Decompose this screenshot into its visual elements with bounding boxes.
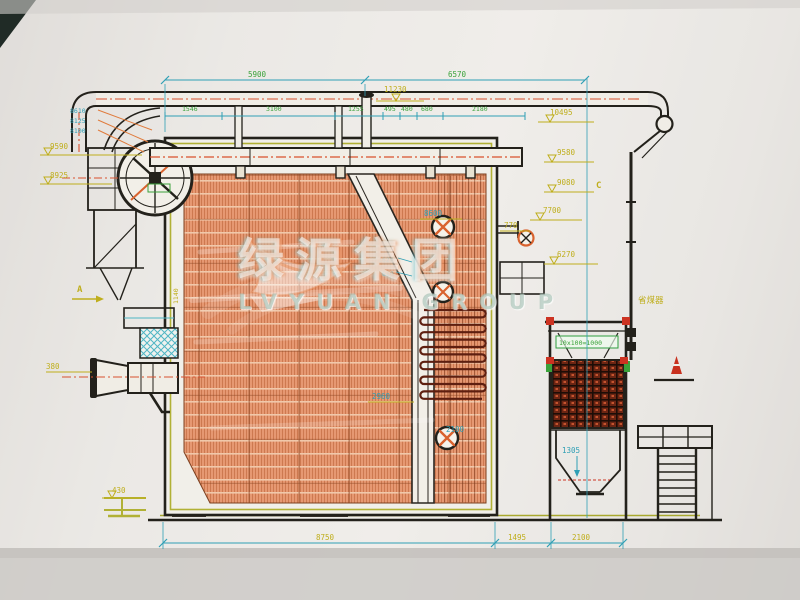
dim-bottom-3: 2100 [572,533,591,542]
elev-platform-left: 9590 [50,142,69,151]
dim-row-7: 2180 [472,105,488,113]
marker-c: C [596,181,601,191]
wall-section-hatch [140,328,178,358]
dim-base: 430 [112,486,126,495]
elev-right-4: 7700 [543,206,562,215]
elev-pipe2: 8125 [70,117,86,125]
elev-right-3: 9080 [557,178,576,187]
elev-pipe1: 8610 [70,107,86,115]
dim-duct-b: 610 [382,270,394,278]
dim-span-left: 5900 [248,70,267,79]
dim-width: 2960 [372,392,391,401]
dim-row-6: 680 [421,105,433,113]
photo-of-drawing: 5900 6570 11230 1546 3100 1255 495 480 6… [0,0,800,600]
vent-stub [362,96,371,148]
elev-lower-left: 8925 [50,171,68,180]
dim-bottom-1: 8750 [316,533,335,542]
dim-econ-pitch: 10x100=1000 [559,339,602,347]
dim-row-3: 1255 [348,105,364,113]
dim-span-right: 6570 [448,70,467,79]
dim-burner: 380 [46,362,60,371]
dim-row-4: 495 [384,105,396,113]
dim-row-1: 1546 [182,105,198,113]
label-equipment: 省煤器 [638,295,664,306]
dim-duct-a: 1620 [378,256,394,264]
dim-stub: 770 [504,221,518,230]
boiler-drawing: 5900 6570 11230 1546 3100 1255 495 480 6… [0,0,800,600]
dim-rear: 2100 [446,425,465,434]
dim-hopper: 1305 [562,446,580,455]
dim-target-top: 8600 [424,209,443,218]
econ-bundle [552,360,624,428]
elev-right-1: 10495 [550,108,573,117]
photo-bottom-edge [0,548,800,558]
marker-a: A [77,285,83,295]
elev-right-2: 9580 [557,148,576,157]
dim-row-5: 480 [401,105,413,113]
dim-bottom-2: 1495 [508,533,526,542]
dim-left-v: 1140 [172,288,180,304]
elev-right-5: 6270 [557,250,576,259]
dim-row-2: 3100 [266,105,282,113]
elev-pipe3: 8100 [70,127,86,135]
dim-vent-elev: 11230 [384,85,407,94]
